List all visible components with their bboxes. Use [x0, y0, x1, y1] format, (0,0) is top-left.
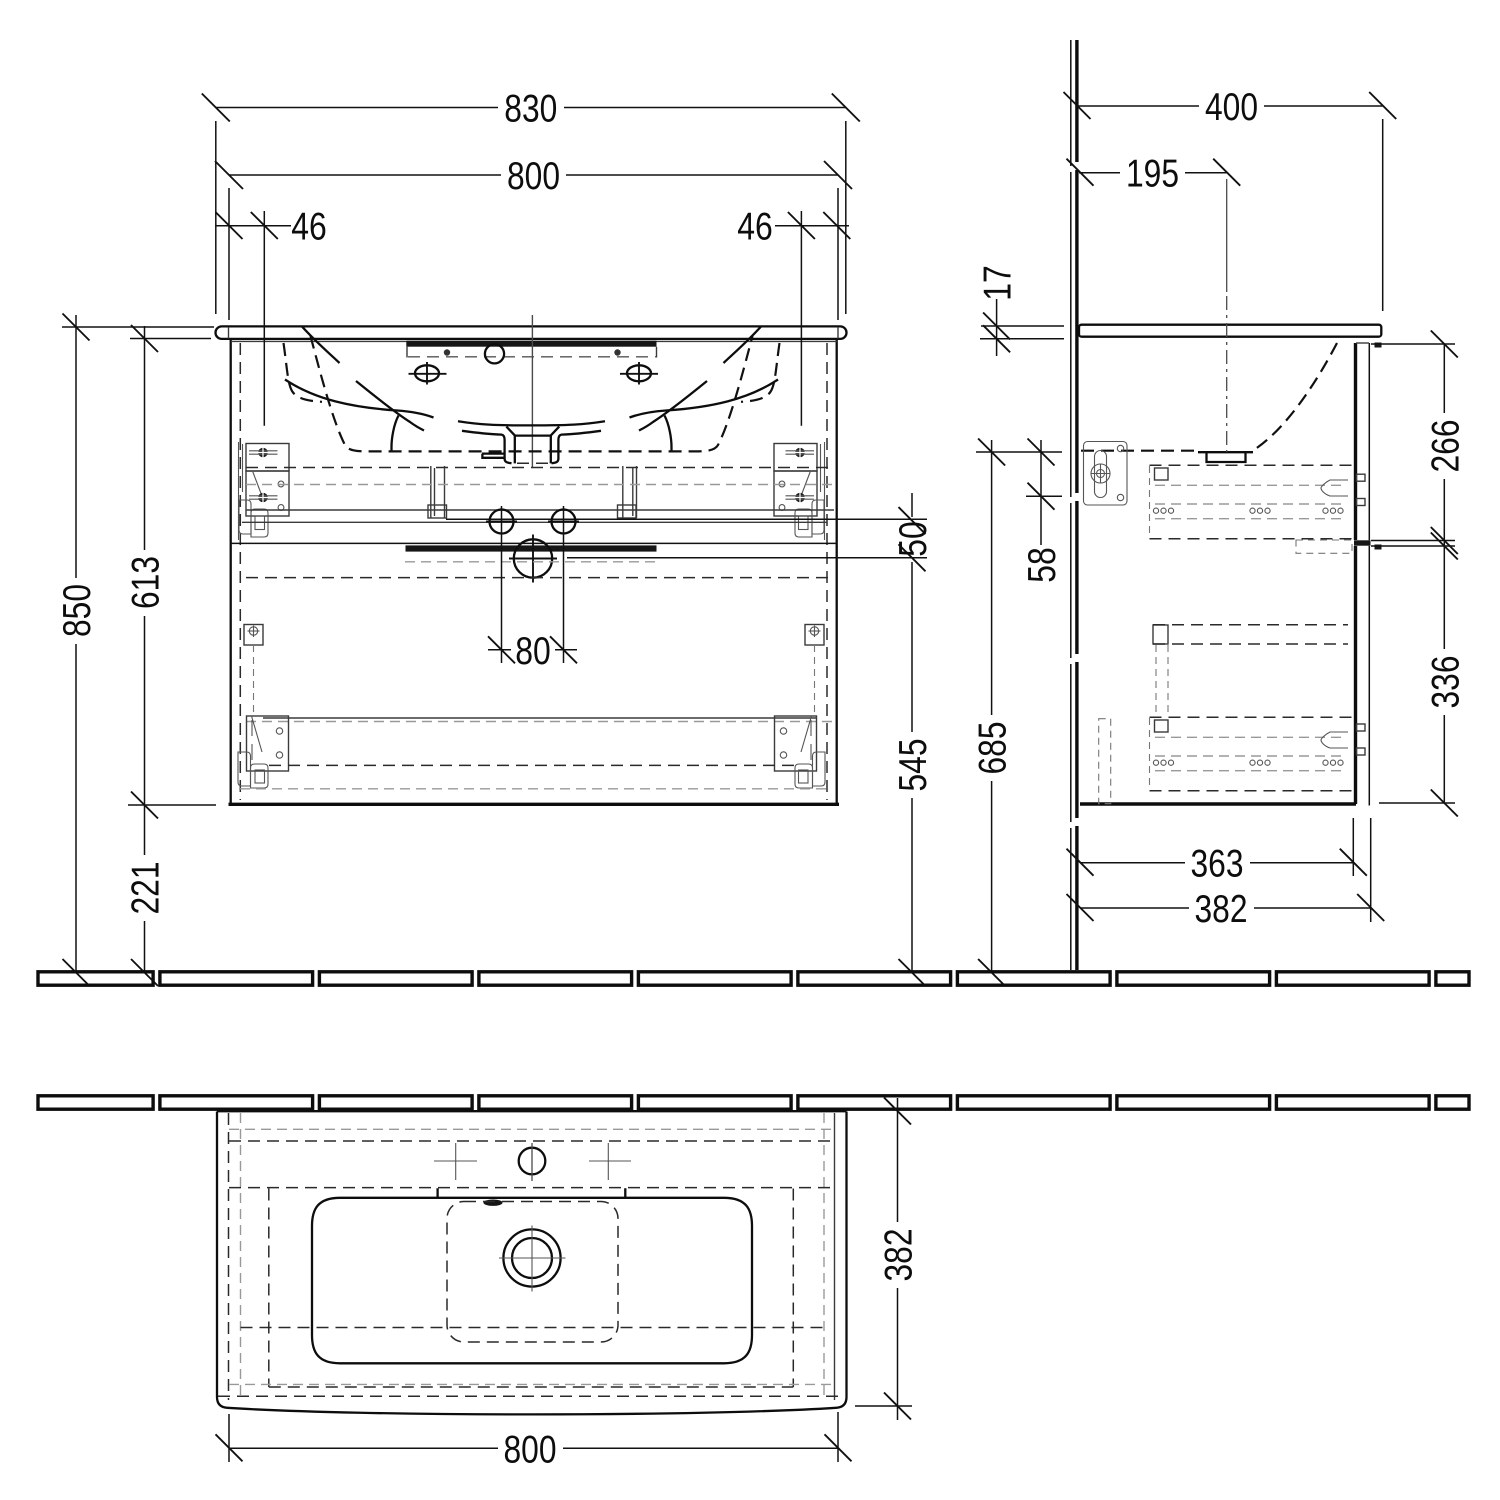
svg-text:382: 382 [878, 1229, 921, 1282]
svg-text:195: 195 [1126, 153, 1179, 196]
svg-text:221: 221 [125, 862, 168, 915]
svg-text:830: 830 [504, 88, 557, 131]
svg-text:80: 80 [515, 630, 551, 673]
svg-text:382: 382 [1195, 888, 1248, 931]
svg-text:363: 363 [1191, 843, 1244, 886]
svg-text:800: 800 [504, 1428, 557, 1471]
svg-text:685: 685 [972, 722, 1015, 775]
svg-text:50: 50 [892, 521, 935, 557]
svg-text:545: 545 [892, 739, 935, 792]
svg-text:400: 400 [1205, 86, 1258, 129]
svg-text:46: 46 [737, 206, 773, 249]
svg-text:613: 613 [125, 556, 168, 609]
svg-text:46: 46 [291, 206, 327, 249]
svg-text:336: 336 [1424, 656, 1467, 709]
svg-text:58: 58 [1021, 547, 1064, 583]
svg-text:266: 266 [1424, 420, 1467, 473]
svg-text:850: 850 [56, 584, 99, 637]
svg-text:800: 800 [507, 155, 560, 198]
svg-text:17: 17 [977, 265, 1020, 301]
